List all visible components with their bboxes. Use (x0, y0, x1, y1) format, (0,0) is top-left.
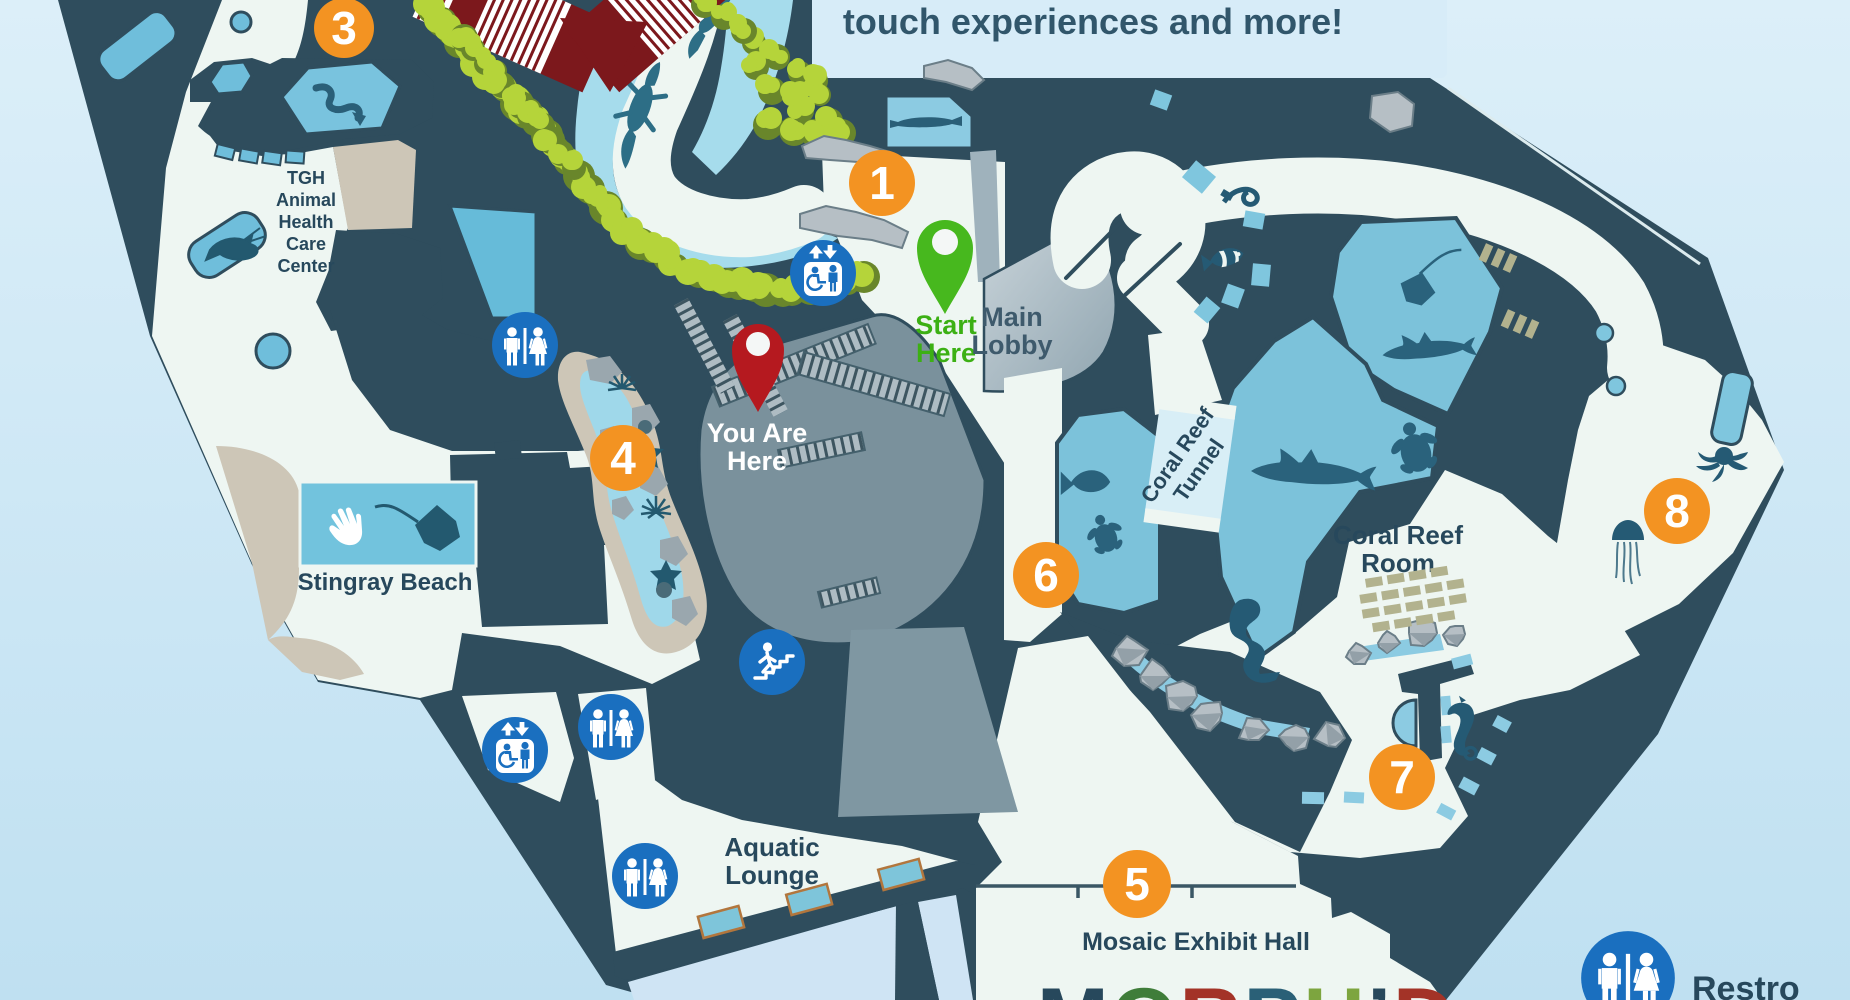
svg-text:8: 8 (1664, 485, 1690, 537)
svg-text:Mosaic Exhibit Hall: Mosaic Exhibit Hall (1082, 928, 1310, 956)
svg-text:1: 1 (869, 157, 895, 209)
svg-text:Aquatic: Aquatic (724, 832, 819, 862)
svg-text:Lounge: Lounge (725, 860, 819, 890)
svg-text:Stingray Beach: Stingray Beach (298, 569, 473, 596)
svg-text:Restro: Restro (1692, 970, 1800, 1000)
svg-text:Lobby: Lobby (972, 330, 1053, 360)
svg-text:Animal: Animal (276, 190, 336, 210)
svg-text:5: 5 (1124, 858, 1150, 910)
svg-text:TGH: TGH (287, 168, 325, 188)
svg-text:4: 4 (610, 432, 636, 484)
svg-text:MORPH’D: MORPH’D (1037, 971, 1457, 1000)
svg-text:7: 7 (1389, 751, 1415, 803)
svg-text:Health: Health (278, 212, 333, 232)
svg-text:touch experiences and more!: touch experiences and more! (843, 1, 1343, 42)
svg-text:Main: Main (981, 302, 1043, 332)
svg-text:6: 6 (1033, 549, 1059, 601)
svg-text:3: 3 (331, 2, 357, 54)
svg-text:Center: Center (277, 256, 334, 276)
svg-text:Here: Here (727, 446, 787, 476)
svg-text:Coral Reef: Coral Reef (1333, 520, 1463, 550)
svg-text:Start: Start (915, 310, 977, 340)
svg-text:Care: Care (286, 234, 326, 254)
svg-text:Here: Here (916, 338, 976, 368)
svg-text:You Are: You Are (707, 418, 808, 448)
